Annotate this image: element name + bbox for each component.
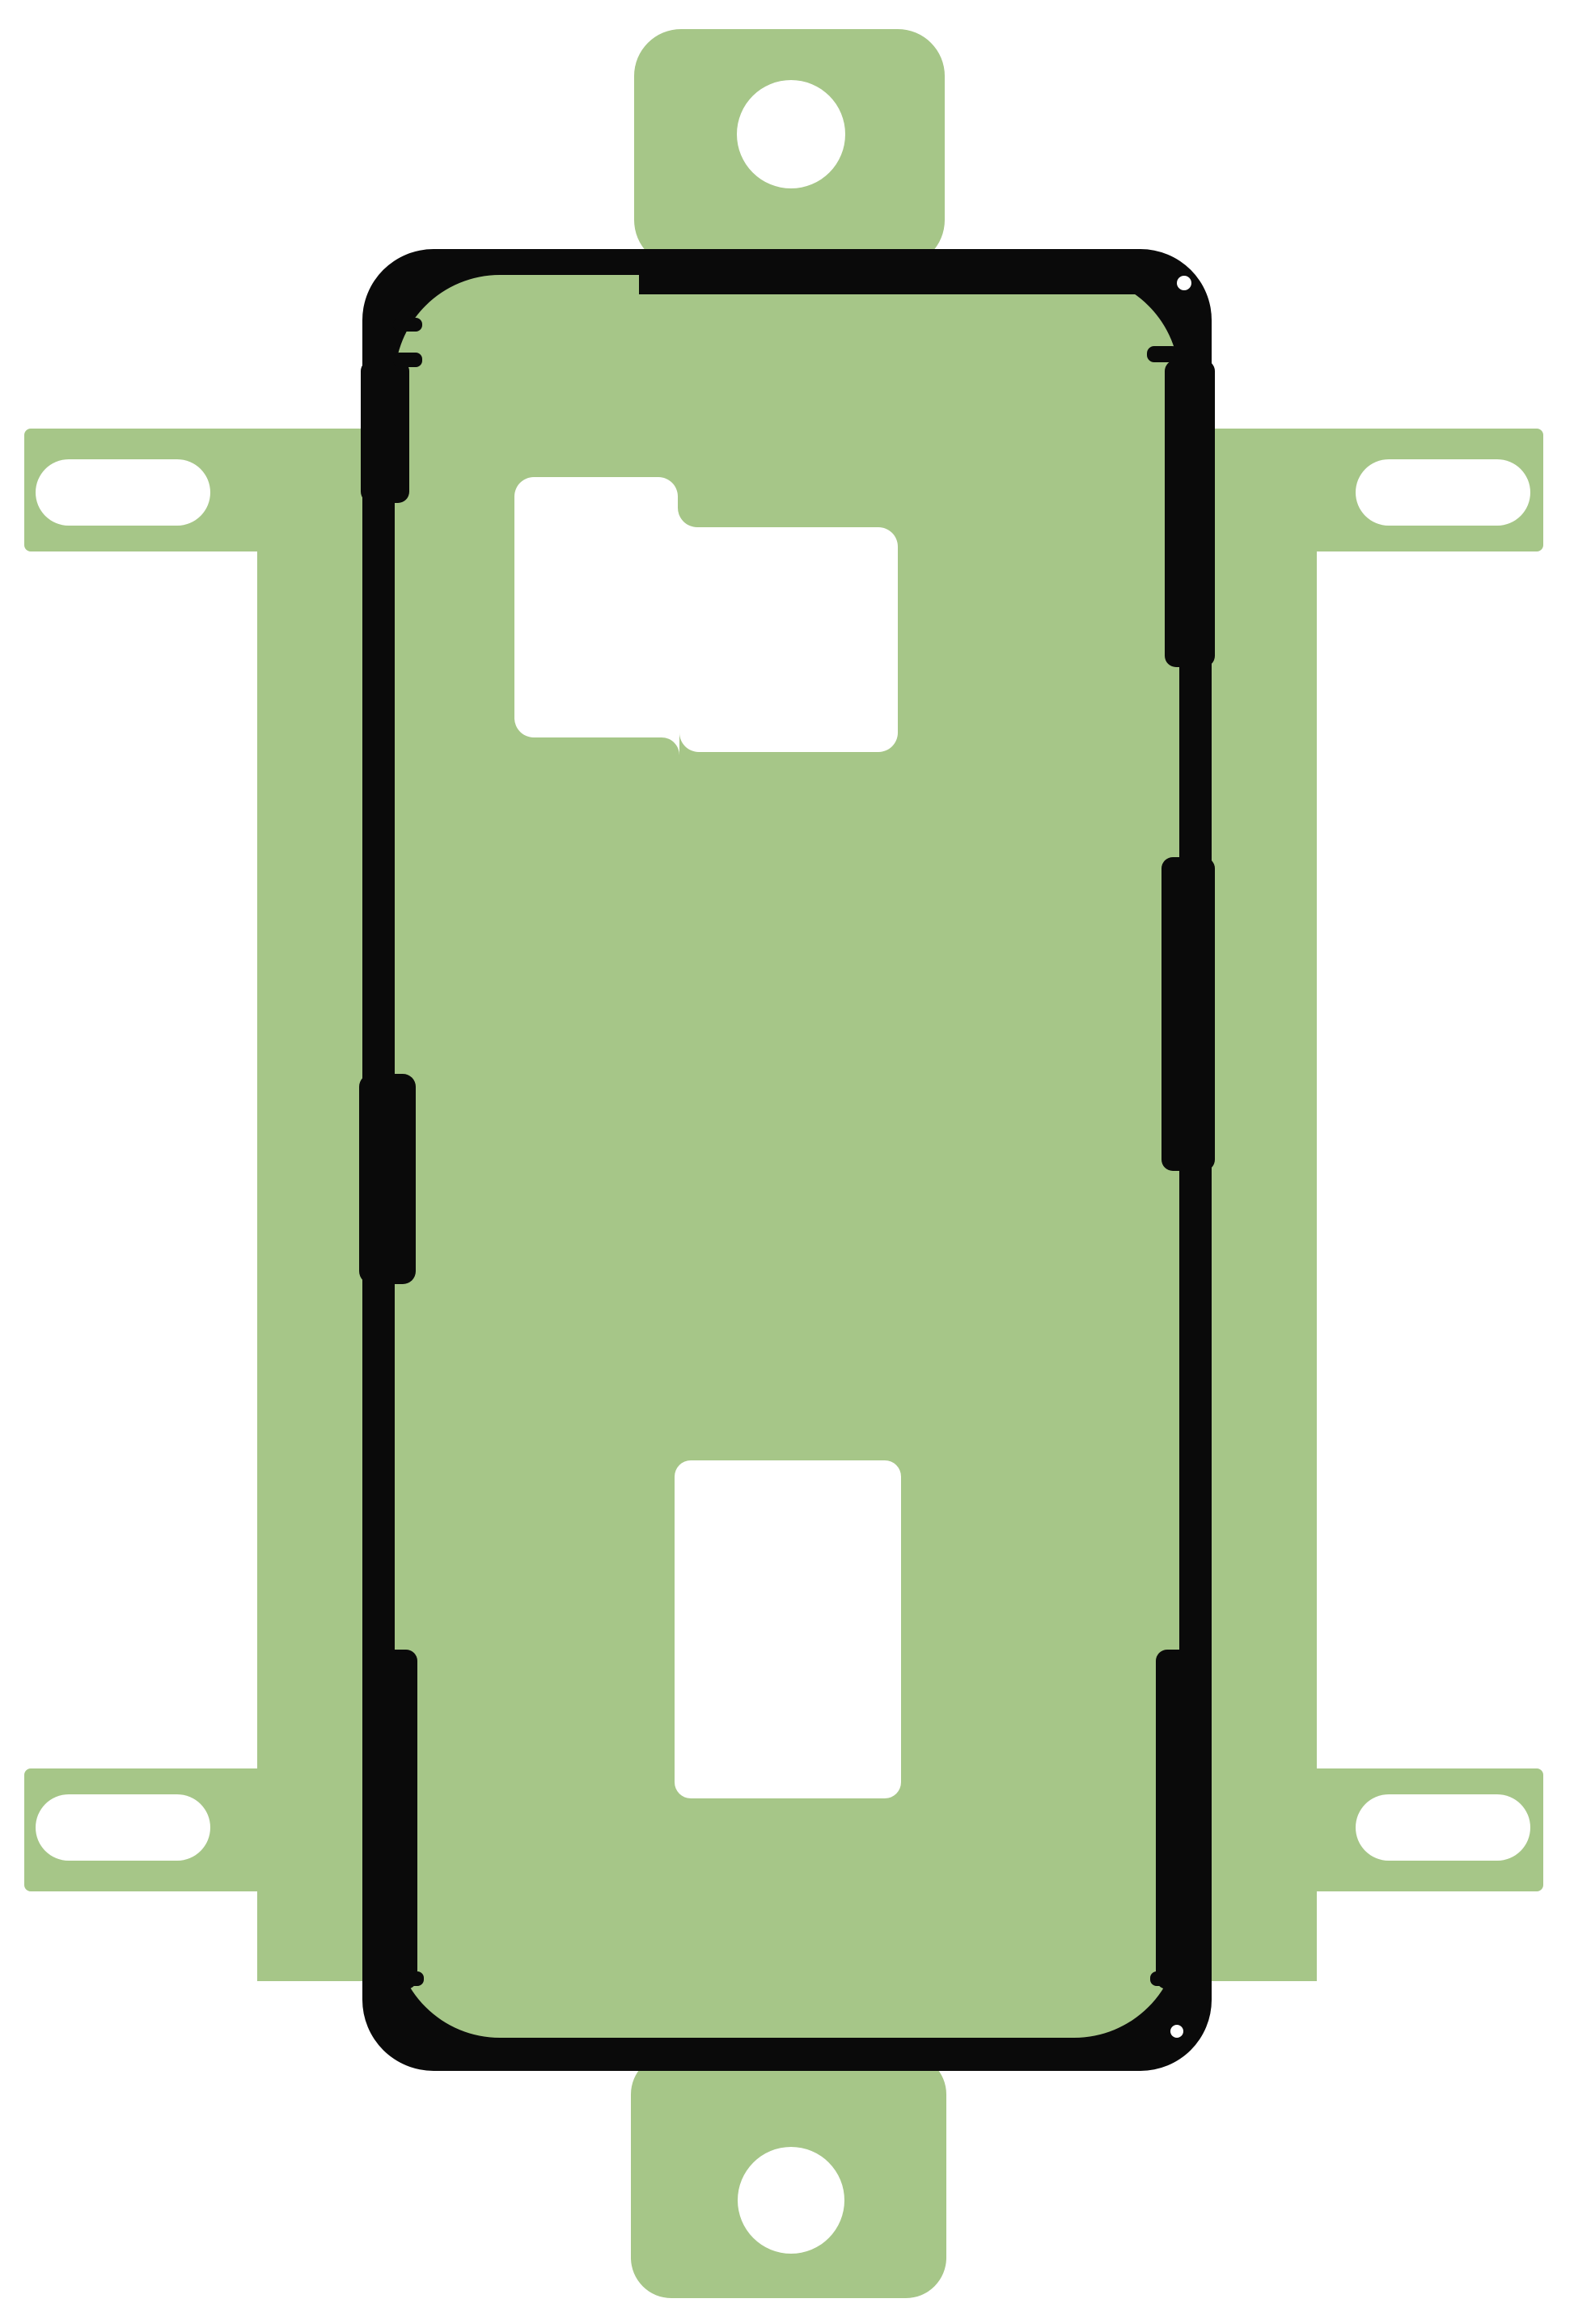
right-vertical-strip <box>1194 485 1317 1981</box>
slot-left-top <box>36 459 210 526</box>
mid-right-button-strip <box>1161 857 1215 1171</box>
battery-window-cutout <box>675 1460 901 1798</box>
cut-tick-bottom-left <box>398 1971 424 1986</box>
slot-left-bottom <box>36 1794 210 1861</box>
cut-tick-top-right <box>1147 346 1179 362</box>
adhesive-sticker-photo <box>0 0 1574 2324</box>
slot-right-top <box>1356 459 1530 526</box>
nick-mark-top-right <box>1177 276 1191 290</box>
upper-left-button-strip <box>361 360 409 503</box>
cut-tick-top-left-1 <box>393 318 422 332</box>
nick-mark-bottom-right <box>1170 2025 1183 2038</box>
lower-left-thick-strip <box>362 1650 417 1989</box>
mid-left-button-strip <box>359 1074 416 1284</box>
adhesive-sticker-canvas <box>0 0 1574 2324</box>
top-tab-hole <box>737 80 845 188</box>
lower-right-thick-strip <box>1156 1650 1212 1989</box>
slot-right-bottom <box>1356 1794 1530 1861</box>
cut-tick-bottom-right <box>1150 1971 1176 1986</box>
cut-tick-top-left-2 <box>393 353 422 367</box>
upper-right-button-strip <box>1165 360 1215 667</box>
bottom-tab-hole <box>738 2147 844 2254</box>
top-right-thick-strip <box>639 273 1179 294</box>
